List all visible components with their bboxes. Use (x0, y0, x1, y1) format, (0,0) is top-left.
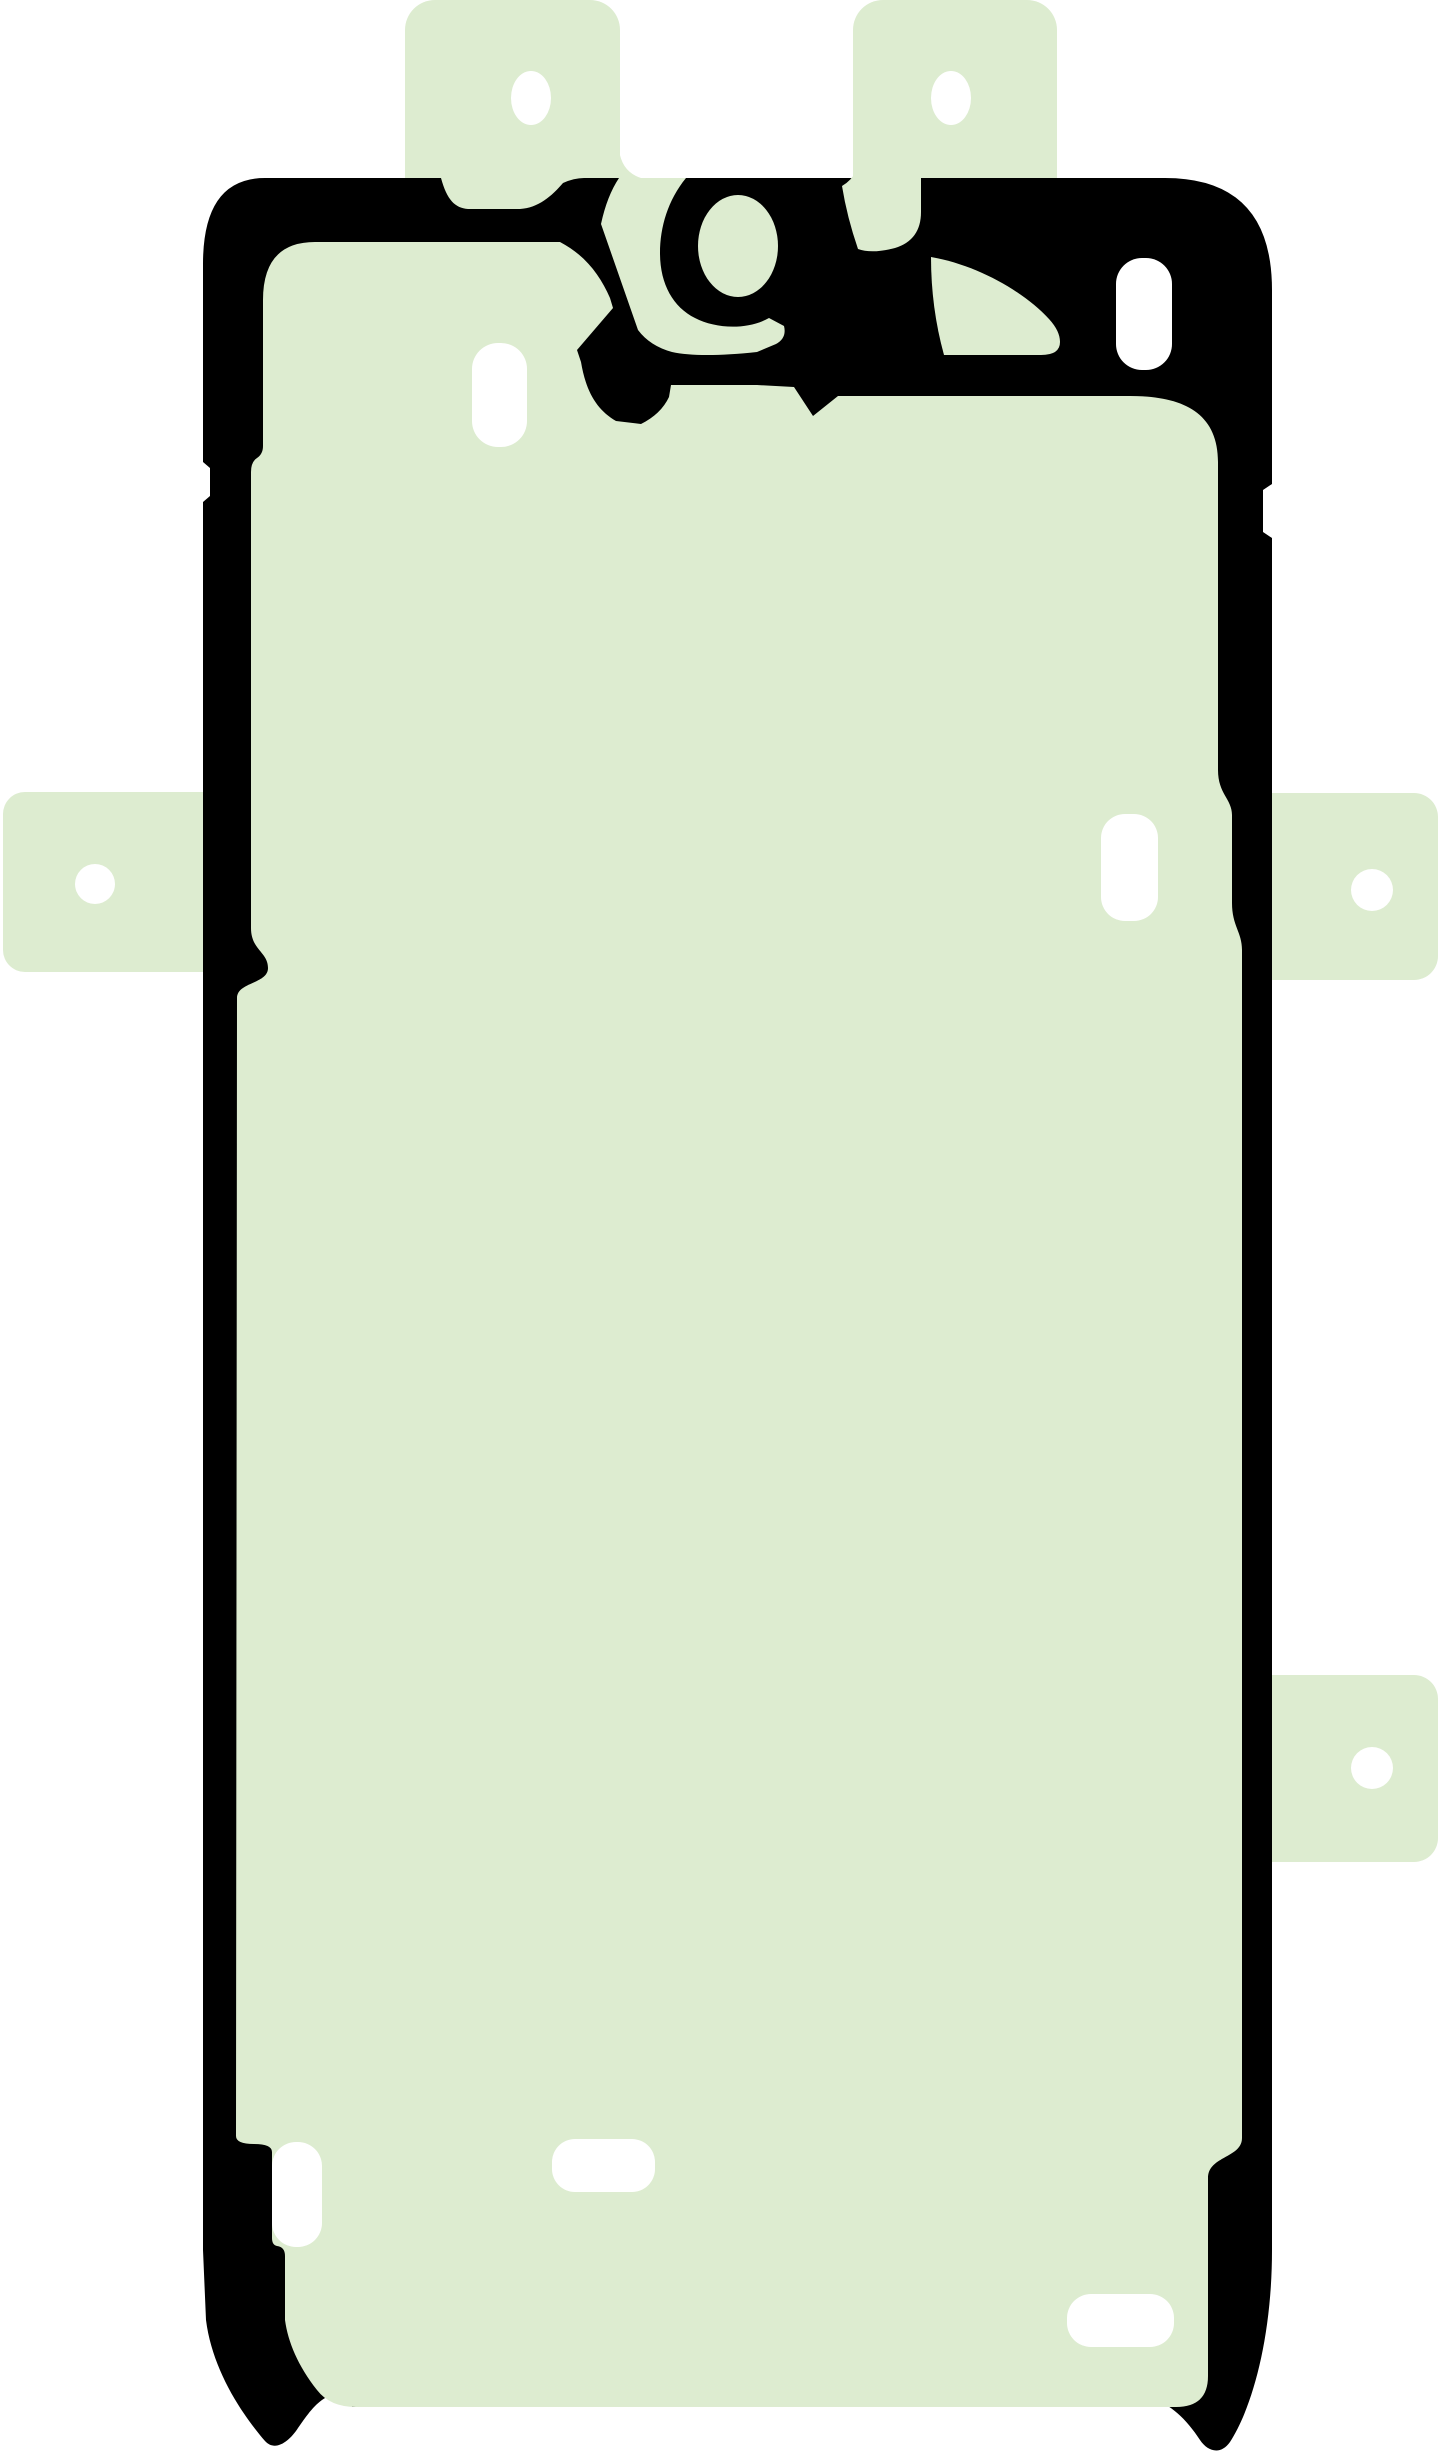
hole-top-right (931, 71, 971, 125)
hole-right-middle (1351, 869, 1393, 911)
slot-bottom-center (552, 2139, 655, 2192)
hole-right-lower (1351, 1747, 1393, 1789)
film-panel (236, 242, 1242, 2407)
slot-right-middle (1101, 814, 1158, 921)
slot-upper-left (472, 343, 527, 447)
hole-top-left (511, 71, 551, 125)
hole-left-middle (75, 864, 115, 904)
slot-bottom-right (1067, 2294, 1174, 2347)
slot-upper-right (1116, 258, 1172, 370)
camera-loop-interior (698, 195, 778, 297)
adhesive-sticker-graphic (0, 0, 1445, 2452)
product-image-stage (0, 0, 1445, 2452)
slot-lower-left (272, 2142, 322, 2247)
